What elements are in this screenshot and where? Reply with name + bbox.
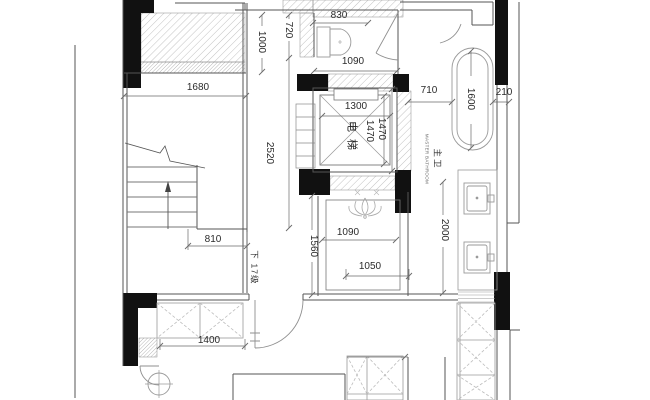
vanity-sinks [458, 170, 497, 290]
master-bath-label-en: MASTER BATHROOM [424, 134, 429, 184]
dim-1560: 1560 [308, 235, 318, 257]
dim-1470-inner: 1470 [364, 120, 374, 142]
duct-riser [296, 104, 315, 168]
dim-210: 210 [496, 88, 513, 98]
dim-710: 710 [421, 86, 438, 96]
stairs-steps-label: 17级 [250, 264, 259, 285]
dim-1090-room: 1090 [337, 228, 359, 238]
dim-720: 720 [283, 22, 293, 39]
dim-830: 830 [331, 11, 348, 21]
dim-2520: 2520 [264, 142, 274, 164]
wardrobe-cross-marks [157, 303, 495, 400]
dim-1680: 1680 [187, 83, 209, 93]
elevator-label: 电梯 [346, 121, 357, 157]
dim-1000: 1000 [256, 31, 266, 53]
floor-plan: 1680 830 1000 720 2520 1090 1300 1470 14… [0, 0, 650, 400]
stairs-down-label: 下 [250, 250, 259, 260]
toilet-icon [317, 27, 351, 57]
dim-1600: 1600 [465, 88, 475, 110]
lamp-symbol [349, 190, 381, 218]
dim-810: 810 [205, 235, 222, 245]
dim-1050: 1050 [359, 262, 381, 272]
hatched-walls [139, 0, 411, 357]
dim-1400: 1400 [198, 336, 220, 346]
master-bath-label-cn: 主卫 [433, 148, 442, 169]
dim-2000: 2000 [439, 219, 449, 241]
dim-1470-outer: 1470 [376, 118, 386, 140]
floor-plan-drawing [0, 0, 650, 400]
drain-circle-icon [145, 370, 173, 398]
dim-1090-top: 1090 [342, 57, 364, 67]
dim-1300: 1300 [345, 102, 367, 112]
staircase [125, 143, 205, 229]
lamp-room [326, 200, 400, 290]
